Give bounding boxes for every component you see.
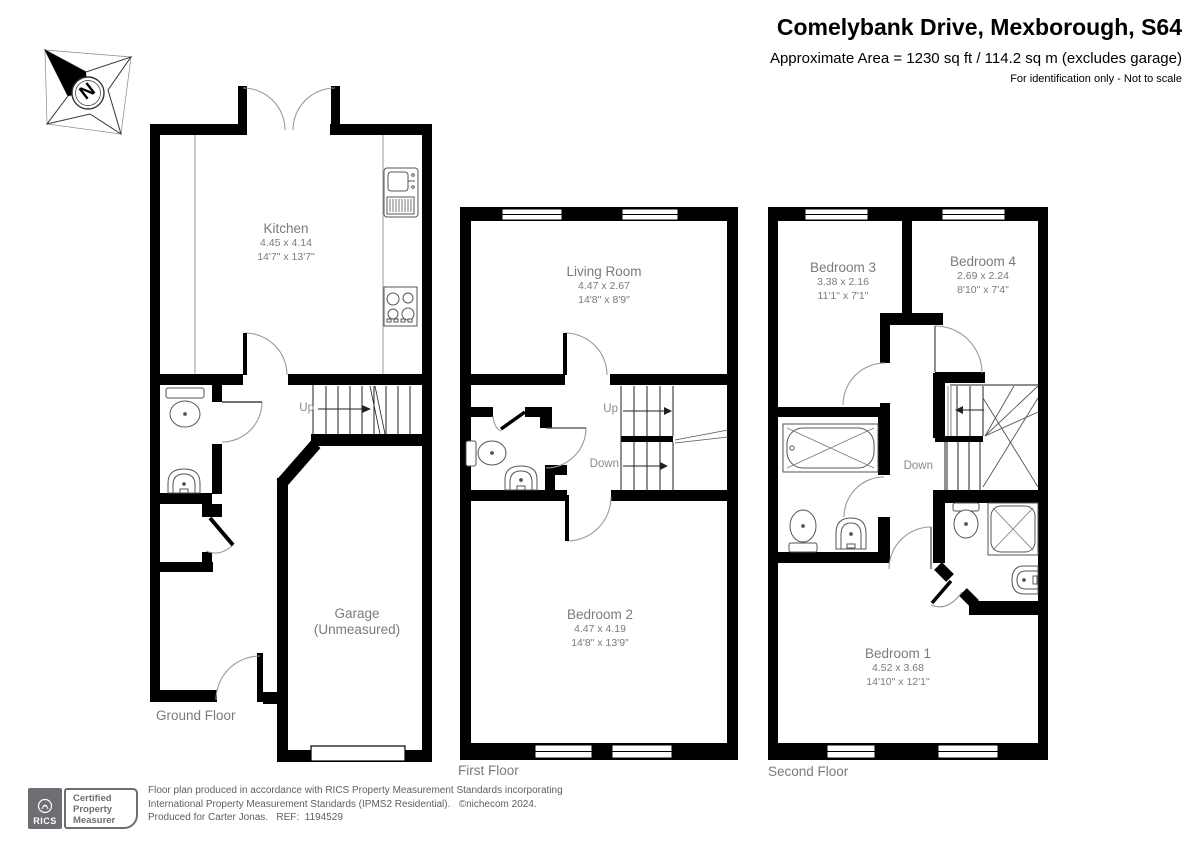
room-label-bedroom-3: Bedroom 3 3.38 x 2.16 11'1" x 7'1": [810, 260, 876, 303]
header: Comelybank Drive, Mexborough, S64 Approx…: [770, 14, 1182, 85]
rics-wordmark: RICS: [33, 816, 57, 826]
room-label-kitchen: Kitchen 4.45 x 4.14 14'7" x 13'7": [257, 221, 315, 264]
stairs-down-label-second: Down: [904, 460, 933, 472]
room-label-garage: Garage (Unmeasured): [314, 606, 400, 638]
area-summary: Approximate Area = 1230 sq ft / 114.2 sq…: [770, 50, 1182, 67]
rics-logo: RICS: [28, 788, 62, 829]
floor-label-second: Second Floor: [768, 764, 848, 779]
floorplan-page: Comelybank Drive, Mexborough, S64 Approx…: [0, 0, 1200, 848]
disclaimer-text: Floor plan produced in accordance with R…: [148, 784, 563, 825]
certified-property-measurer-badge: Certified Property Measurer: [64, 788, 138, 829]
floor-label-ground: Ground Floor: [156, 708, 236, 723]
rics-crest-icon: [36, 798, 54, 816]
room-label-bedroom-4: Bedroom 4 2.69 x 2.24 8'10" x 7'4": [950, 254, 1016, 297]
ground-floor-plan: [150, 86, 432, 762]
scale-note: For identification only - Not to scale: [770, 73, 1182, 85]
stairs-up-label-first: Up: [603, 403, 618, 415]
room-label-bedroom-1: Bedroom 1 4.52 x 3.68 14'10" x 12'1": [865, 646, 931, 689]
room-label-living-room: Living Room 4.47 x 2.67 14'8" x 8'9": [566, 264, 641, 307]
stairs-down-label-first: Down: [590, 458, 619, 470]
floor-label-first: First Floor: [458, 763, 519, 778]
room-label-bedroom-2: Bedroom 2 4.47 x 4.19 14'8" x 13'9": [567, 607, 633, 650]
page-title: Comelybank Drive, Mexborough, S64: [770, 14, 1182, 41]
stairs-up-label-ground: Up: [299, 402, 314, 414]
